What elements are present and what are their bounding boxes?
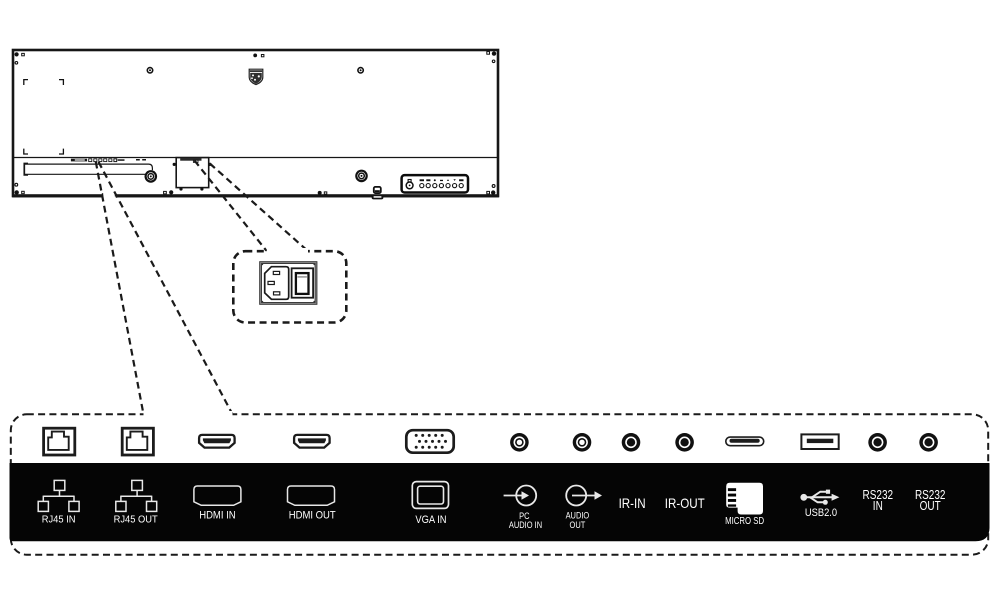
svg-text:IR-OUT: IR-OUT (665, 496, 705, 511)
svg-text:USB2.0: USB2.0 (805, 507, 837, 519)
svg-text:MICRO SD: MICRO SD (725, 515, 764, 526)
svg-text:AUDIO IN: AUDIO IN (509, 519, 542, 530)
svg-text:VGA IN: VGA IN (415, 514, 446, 526)
svg-text:RJ45 OUT: RJ45 OUT (114, 514, 158, 526)
svg-text:IR-IN: IR-IN (619, 496, 646, 511)
svg-text:HDMI OUT: HDMI OUT (289, 510, 336, 522)
svg-text:OUT: OUT (920, 500, 941, 513)
svg-text:OUT: OUT (570, 519, 586, 530)
svg-text:HDMI IN: HDMI IN (199, 510, 235, 522)
svg-text:RJ45 IN: RJ45 IN (42, 514, 76, 526)
svg-text:IN: IN (873, 500, 883, 513)
